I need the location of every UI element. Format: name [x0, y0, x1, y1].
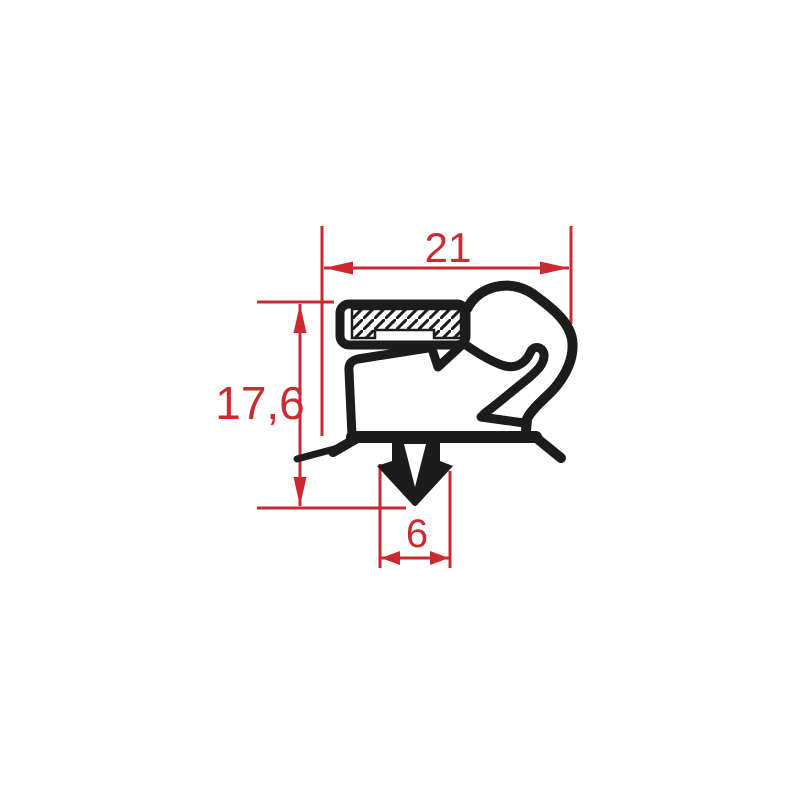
arrowhead-right-icon — [540, 262, 569, 275]
arrowhead-up-icon — [294, 304, 307, 333]
rib-left-band — [349, 348, 428, 436]
dimension-height-label: 17,6 — [215, 377, 305, 429]
arrowhead-foot-right-icon — [430, 551, 449, 565]
drawing-canvas: 21 17,6 6 — [0, 0, 800, 800]
dimension-width-label: 21 — [425, 224, 472, 271]
arrowhead-left-icon — [324, 262, 353, 275]
dimension-foot-label: 6 — [406, 512, 428, 556]
gasket-profile — [297, 286, 573, 506]
base-right-foot — [534, 436, 561, 458]
technical-drawing: 21 17,6 6 — [0, 0, 800, 800]
arrowhead-down-icon — [294, 477, 307, 506]
arrowhead-foot-left-icon — [381, 551, 400, 565]
